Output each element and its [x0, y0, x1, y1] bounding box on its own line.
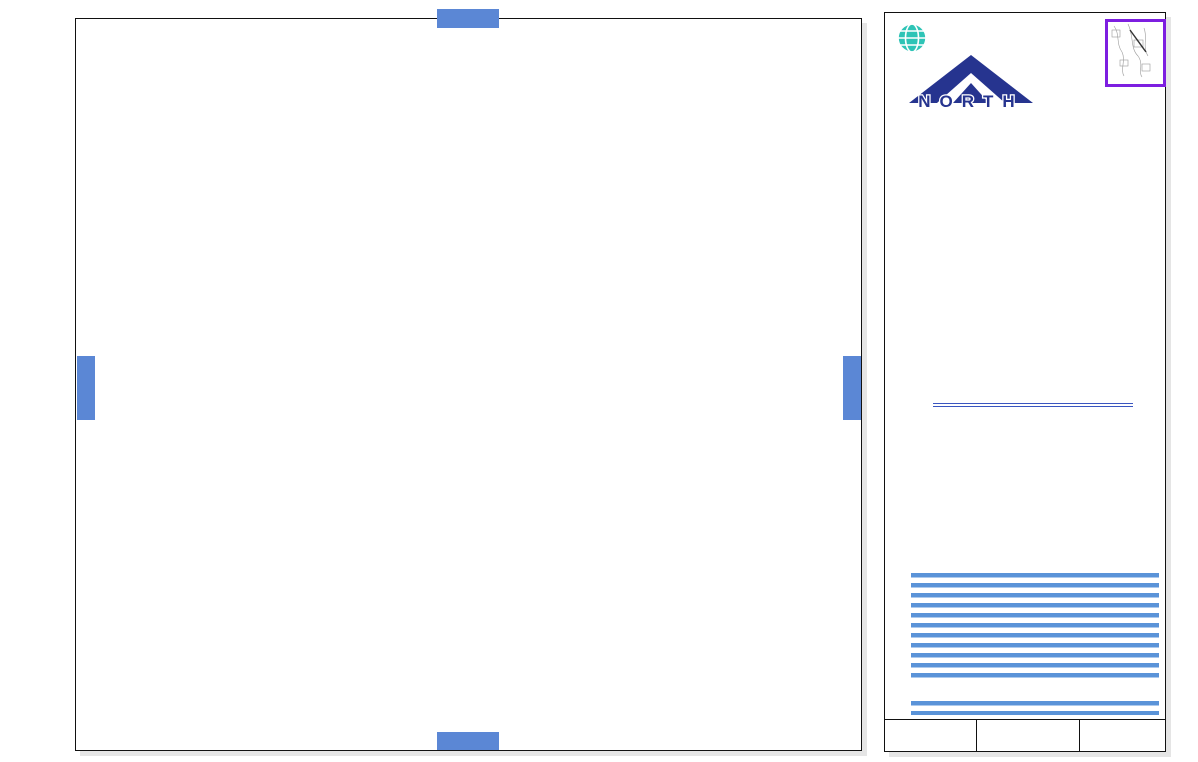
topographic-map	[76, 19, 861, 750]
logo-department	[911, 681, 1159, 685]
title-panel: NORTH	[884, 12, 1166, 752]
logo-stripes	[911, 573, 1159, 685]
vicinity-inset-map	[1105, 19, 1166, 87]
legend-rule	[933, 403, 1133, 404]
scale-bar	[981, 732, 1081, 750]
legend-rule	[933, 406, 1133, 407]
tab-sheet-east[interactable]	[843, 356, 861, 420]
map-sheet	[75, 18, 862, 751]
tab-sheet-north[interactable]	[437, 9, 499, 28]
tab-sheet-west[interactable]	[77, 356, 95, 420]
logo-stripes	[911, 701, 1159, 715]
divider	[885, 719, 1165, 720]
tab-sheet-south[interactable]	[437, 732, 499, 750]
divider	[976, 719, 977, 751]
